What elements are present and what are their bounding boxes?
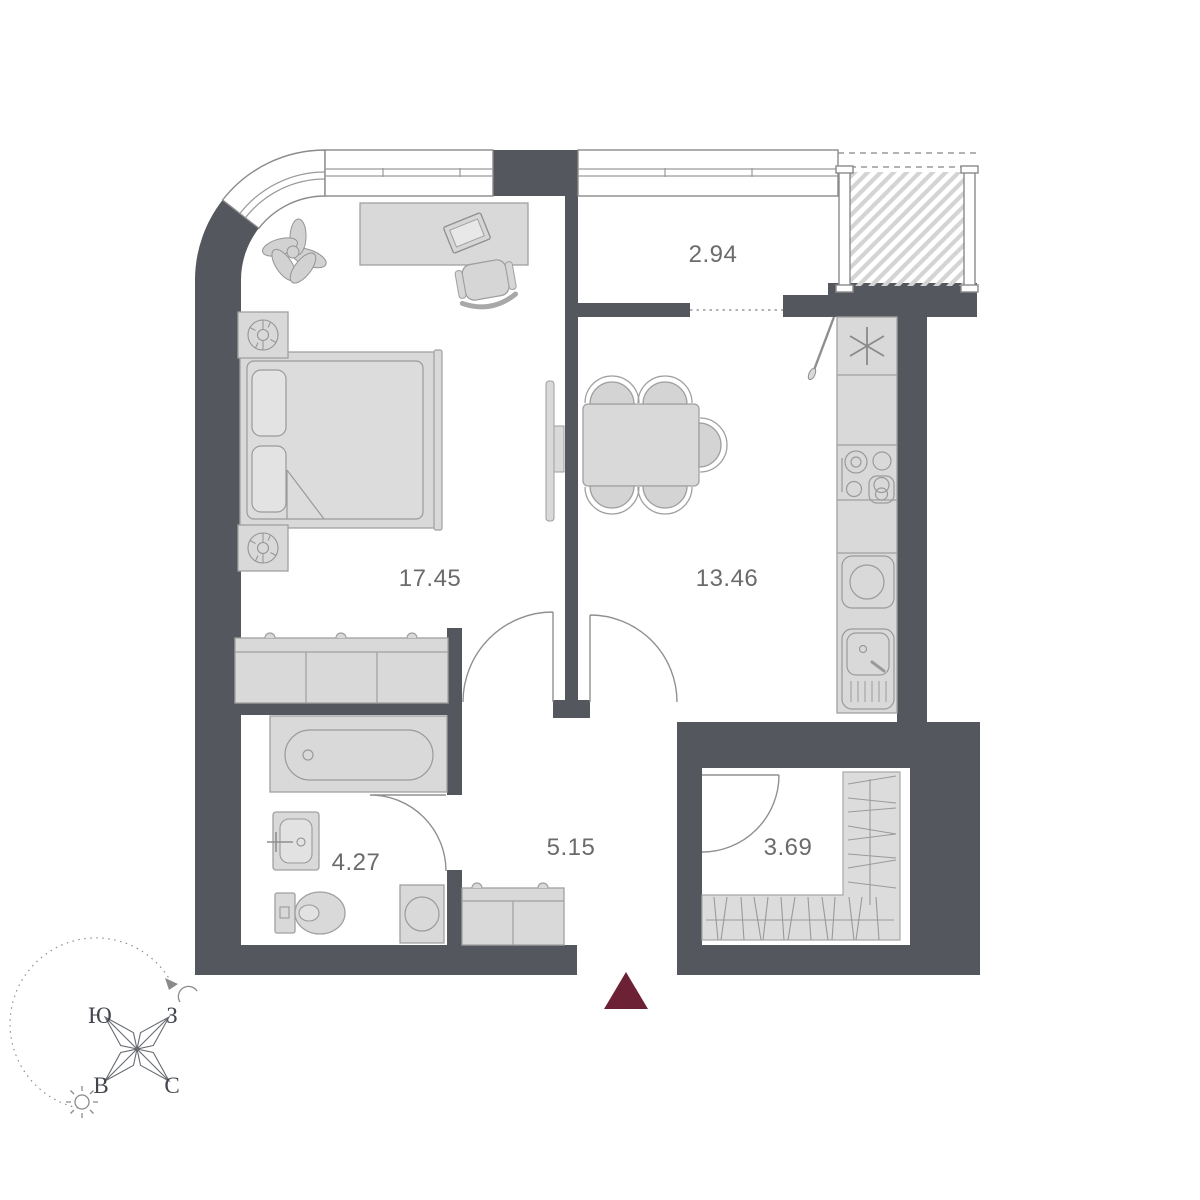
toilet (275, 892, 345, 934)
bedroom-door (463, 612, 553, 702)
balcony-open-section (836, 153, 978, 292)
wall-left (195, 278, 241, 975)
compass-north-label: С (164, 1073, 179, 1098)
bathroom-sink (267, 812, 319, 870)
compass-rose: Ю З В С (10, 938, 197, 1118)
wall-right-lower (910, 768, 980, 975)
window-bedroom (325, 150, 493, 196)
wall-top-pier (493, 150, 578, 196)
wardrobe-area-label: 3.69 (764, 834, 813, 861)
wall-bedroom-kitchen-divider (565, 196, 578, 700)
kitchen-counter (837, 317, 897, 713)
kitchen-furniture (583, 317, 897, 713)
balcony-door-handle (807, 367, 818, 380)
floor-plan-page: 17.45 13.46 2.94 4.27 5.15 3.69 Ю З В С (0, 0, 1200, 1200)
bed (240, 350, 442, 530)
wall-kitchen-bottom (677, 722, 980, 768)
compass-east-label: В (93, 1073, 108, 1098)
moon-icon (178, 986, 197, 1002)
hall-cabinet (462, 883, 564, 945)
entrance-triangle-icon (604, 972, 648, 1009)
compass-letters: Ю З В С (88, 1003, 179, 1098)
window-balcony (578, 150, 838, 196)
bedroom-furniture (235, 203, 564, 703)
bathtub (270, 716, 447, 792)
dresser (235, 633, 448, 703)
balcony-door-leaf (814, 317, 834, 370)
bathroom-furniture (267, 716, 447, 943)
bathroom-area-label: 4.27 (332, 849, 381, 876)
washing-machine (400, 885, 444, 943)
railing-post-left (836, 166, 853, 292)
balcony-area-label: 2.94 (689, 241, 738, 268)
pillow (252, 370, 286, 436)
balcony-hatch-area (850, 172, 965, 286)
compass-west-label: З (166, 1003, 178, 1028)
cabinet-knobs (472, 883, 548, 888)
wall-bathroom-right-upper (447, 628, 462, 795)
kitchen-door (590, 615, 677, 702)
nightstand-bottom (238, 525, 288, 571)
bathroom-door (370, 795, 446, 871)
bedroom-area-label: 17.45 (399, 565, 462, 592)
wall-right-kitchen (897, 283, 927, 768)
bed-footboard (434, 350, 442, 530)
wall-wardrobe-left (677, 768, 702, 945)
floor-plan-drawing: 17.45 13.46 2.94 4.27 5.15 3.69 Ю З В С (0, 0, 1200, 1200)
compass-star (105, 1017, 169, 1081)
dining-table (583, 404, 699, 486)
kitchen-area-label: 13.46 (696, 565, 759, 592)
wall-kitchen-top (578, 303, 690, 317)
hallway-area-label: 5.15 (547, 834, 596, 861)
wall-bathroom-right-lower (447, 870, 462, 945)
compass-arrowhead (165, 978, 178, 990)
pillow (252, 446, 286, 512)
compass-south-label: Ю (88, 1003, 112, 1028)
hallway-furniture (462, 883, 564, 945)
tv-on-wall (546, 381, 564, 521)
wall-bottom-left (195, 945, 577, 975)
plant-icon (260, 219, 328, 287)
railing-post-right (961, 166, 978, 292)
dresser-knobs (265, 633, 417, 638)
nightstand-top (238, 312, 288, 358)
desk (360, 203, 528, 265)
wall-divider-foot (553, 700, 590, 718)
